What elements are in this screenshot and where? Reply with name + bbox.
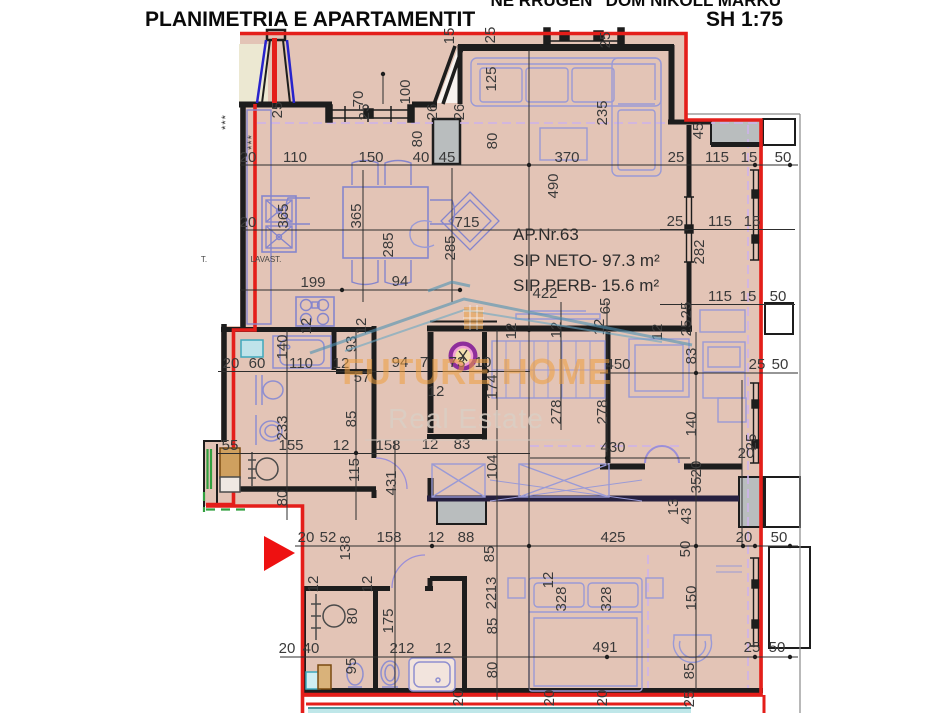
svg-text:12: 12 xyxy=(298,318,315,335)
svg-text:233: 233 xyxy=(274,415,291,440)
svg-text:25: 25 xyxy=(269,102,286,119)
svg-text:85: 85 xyxy=(681,663,698,680)
svg-text:22: 22 xyxy=(483,593,500,610)
svg-text:35: 35 xyxy=(688,477,705,494)
svg-text:158: 158 xyxy=(376,529,401,546)
svg-text:25: 25 xyxy=(678,320,695,337)
svg-text:80: 80 xyxy=(409,131,426,148)
svg-text:20: 20 xyxy=(541,690,558,707)
svg-text:285: 285 xyxy=(442,235,459,260)
svg-text:AP.Nr.63: AP.Nr.63 xyxy=(513,225,579,244)
svg-text:50: 50 xyxy=(775,149,792,166)
svg-text:12: 12 xyxy=(428,529,445,546)
svg-text:Real Estate: Real Estate xyxy=(388,403,544,434)
svg-text:40: 40 xyxy=(413,149,430,166)
svg-text:328: 328 xyxy=(598,586,615,611)
svg-text:PLANIMETRIA E APARTAMENTIT: PLANIMETRIA E APARTAMENTIT xyxy=(145,8,475,31)
svg-text:40: 40 xyxy=(303,640,320,657)
svg-text:20: 20 xyxy=(450,690,467,707)
svg-text:491: 491 xyxy=(592,639,617,656)
svg-text:80: 80 xyxy=(484,662,501,679)
svg-text:20: 20 xyxy=(223,355,240,372)
svg-text:235: 235 xyxy=(594,100,611,125)
svg-text:52: 52 xyxy=(320,529,337,546)
svg-text:70: 70 xyxy=(350,91,367,108)
svg-text:110: 110 xyxy=(283,149,307,166)
svg-text:50: 50 xyxy=(771,529,788,546)
svg-text:20: 20 xyxy=(240,149,257,166)
svg-text:212: 212 xyxy=(389,640,414,657)
svg-text:25: 25 xyxy=(749,356,766,373)
svg-text:715: 715 xyxy=(454,214,479,231)
svg-text:490: 490 xyxy=(545,173,562,198)
svg-text:25: 25 xyxy=(482,27,499,44)
svg-text:140: 140 xyxy=(274,334,291,359)
svg-text:370: 370 xyxy=(554,149,579,166)
svg-text:20: 20 xyxy=(688,461,705,478)
svg-text:15: 15 xyxy=(744,213,761,230)
svg-text:20: 20 xyxy=(736,529,753,546)
svg-text:20: 20 xyxy=(298,529,315,546)
svg-text:94: 94 xyxy=(392,273,409,290)
svg-text:110: 110 xyxy=(289,355,313,372)
svg-text:80: 80 xyxy=(484,133,501,150)
svg-text:425: 425 xyxy=(600,529,625,546)
svg-text:150: 150 xyxy=(683,585,700,610)
svg-text:55: 55 xyxy=(222,437,239,454)
svg-text:365: 365 xyxy=(348,203,365,228)
svg-text:26: 26 xyxy=(451,104,468,121)
svg-text:***: *** xyxy=(220,114,232,130)
svg-text:282: 282 xyxy=(691,239,708,264)
svg-text:104: 104 xyxy=(484,454,501,479)
svg-text:115: 115 xyxy=(346,458,363,482)
svg-text:***: *** xyxy=(246,134,258,150)
svg-text:50: 50 xyxy=(677,541,694,558)
svg-text:50: 50 xyxy=(769,639,786,656)
svg-text:13: 13 xyxy=(483,577,500,594)
svg-text:FUTURE HOME: FUTURE HOME xyxy=(342,351,612,392)
svg-text:278: 278 xyxy=(594,399,611,424)
svg-text:115: 115 xyxy=(708,213,732,230)
svg-text:125: 125 xyxy=(483,66,500,91)
svg-text:85: 85 xyxy=(481,546,498,563)
svg-text:85: 85 xyxy=(343,411,360,428)
svg-text:60: 60 xyxy=(249,355,266,372)
svg-text:25: 25 xyxy=(681,691,698,708)
svg-text:12: 12 xyxy=(435,640,452,657)
svg-text:15: 15 xyxy=(741,149,758,166)
svg-text:25: 25 xyxy=(744,639,761,656)
svg-text:25: 25 xyxy=(743,434,760,451)
svg-text:88: 88 xyxy=(458,529,475,546)
svg-text:431: 431 xyxy=(383,470,400,495)
svg-text:SIP NETO- 97.3 m²: SIP NETO- 97.3 m² xyxy=(513,251,660,270)
svg-text:115: 115 xyxy=(708,288,732,305)
svg-text:138: 138 xyxy=(337,535,354,560)
svg-text:45: 45 xyxy=(439,149,456,166)
svg-text:83: 83 xyxy=(683,348,700,365)
svg-text:100: 100 xyxy=(397,79,414,104)
svg-text:65: 65 xyxy=(597,298,614,315)
svg-text:12: 12 xyxy=(359,576,376,593)
svg-text:365: 365 xyxy=(275,203,292,228)
svg-text:175: 175 xyxy=(380,608,397,633)
svg-text:25: 25 xyxy=(597,32,614,49)
svg-text:12: 12 xyxy=(540,572,557,589)
svg-text:T.: T. xyxy=(201,255,207,264)
svg-text:12: 12 xyxy=(333,437,350,454)
svg-text:20: 20 xyxy=(240,214,257,231)
svg-text:95: 95 xyxy=(343,658,360,675)
svg-text:SH 1:75: SH 1:75 xyxy=(706,8,783,31)
svg-text:140: 140 xyxy=(683,411,700,436)
svg-text:26: 26 xyxy=(424,104,441,121)
svg-text:12: 12 xyxy=(503,323,520,340)
svg-text:50: 50 xyxy=(772,356,789,373)
svg-text:25: 25 xyxy=(668,149,685,166)
svg-text:20: 20 xyxy=(594,690,611,707)
svg-text:12: 12 xyxy=(422,436,439,453)
svg-text:50: 50 xyxy=(770,288,787,305)
svg-text:115: 115 xyxy=(705,149,729,166)
svg-text:20: 20 xyxy=(279,640,296,657)
svg-text:SIP PERB- 15.6 m²: SIP PERB- 15.6 m² xyxy=(513,276,659,295)
svg-text:LAVAST.: LAVAST. xyxy=(251,255,282,264)
svg-text:278: 278 xyxy=(548,399,565,424)
svg-text:85: 85 xyxy=(484,618,501,635)
svg-text:12: 12 xyxy=(305,576,322,593)
svg-text:45: 45 xyxy=(690,123,707,140)
svg-text:80: 80 xyxy=(274,490,291,507)
svg-text:83: 83 xyxy=(454,436,471,453)
svg-text:80: 80 xyxy=(344,608,361,625)
svg-text:285: 285 xyxy=(380,232,397,257)
svg-text:199: 199 xyxy=(300,274,325,291)
svg-text:43: 43 xyxy=(678,508,695,525)
svg-text:25: 25 xyxy=(678,302,695,319)
svg-text:15: 15 xyxy=(740,288,757,305)
svg-text:150: 150 xyxy=(358,149,383,166)
svg-text:430: 430 xyxy=(600,439,625,456)
svg-text:25: 25 xyxy=(667,213,684,230)
svg-text:328: 328 xyxy=(553,586,570,611)
